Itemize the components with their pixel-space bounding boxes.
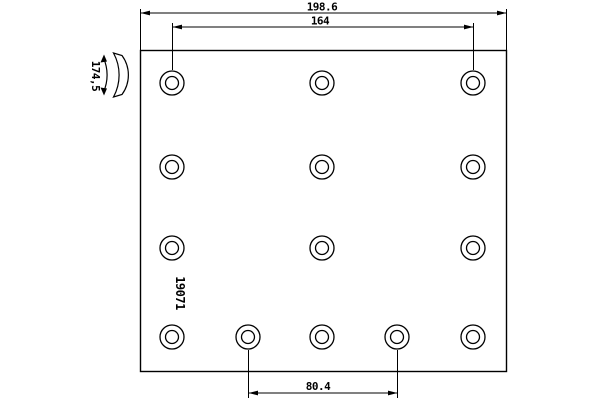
part-number-label: 19071 bbox=[173, 276, 187, 310]
rivet-hole bbox=[160, 236, 184, 260]
arrowhead-left-icon bbox=[249, 391, 259, 396]
dimension-label-upper-hole-span: 164 bbox=[311, 15, 330, 28]
rivet-hole bbox=[166, 77, 179, 90]
rivet-hole bbox=[461, 325, 485, 349]
technical-drawing: 198.6 164 80.4 174,5 bbox=[0, 0, 600, 400]
arrowhead-right-icon bbox=[497, 11, 507, 16]
rivet-hole bbox=[316, 331, 329, 344]
rivet-hole bbox=[160, 155, 184, 179]
rivet-hole bbox=[391, 331, 404, 344]
rivet-hole bbox=[461, 155, 485, 179]
rivet-hole bbox=[316, 77, 329, 90]
rivet-hole bbox=[310, 236, 334, 260]
rivet-hole bbox=[310, 155, 334, 179]
arrowhead-right-icon bbox=[464, 25, 474, 30]
dimension-label-overall-width: 198.6 bbox=[307, 1, 338, 14]
dimension-label-lower-hole-span: 80.4 bbox=[306, 380, 331, 393]
rivet-hole bbox=[160, 71, 184, 95]
rivet-hole bbox=[242, 331, 255, 344]
rivet-hole bbox=[467, 77, 480, 90]
rivet-hole bbox=[316, 242, 329, 255]
dimension-upper-hole-span: 164 bbox=[173, 15, 474, 71]
rivet-hole bbox=[166, 242, 179, 255]
rivet-hole bbox=[166, 331, 179, 344]
curvature-crescent bbox=[114, 53, 129, 97]
rivet-holes bbox=[160, 71, 485, 349]
rivet-hole bbox=[160, 325, 184, 349]
rivet-hole bbox=[310, 325, 334, 349]
arrowhead-left-icon bbox=[173, 25, 183, 30]
brake-lining-outline bbox=[141, 51, 507, 372]
rivet-hole bbox=[310, 71, 334, 95]
rivet-hole bbox=[467, 161, 480, 174]
rivet-hole bbox=[385, 325, 409, 349]
rivet-hole bbox=[166, 161, 179, 174]
curvature-arrow-arc bbox=[104, 58, 108, 92]
rivet-hole bbox=[461, 71, 485, 95]
rivet-hole bbox=[467, 242, 480, 255]
arrowhead-left-icon bbox=[141, 11, 151, 16]
rivet-hole bbox=[467, 331, 480, 344]
drawing-canvas: 198.6 164 80.4 174,5 bbox=[0, 0, 600, 400]
dimension-lower-hole-span: 80.4 bbox=[249, 350, 398, 398]
rivet-hole bbox=[461, 236, 485, 260]
rivet-hole bbox=[316, 161, 329, 174]
rivet-hole bbox=[236, 325, 260, 349]
arrowhead-right-icon bbox=[388, 391, 398, 396]
curvature-symbol: 174,5 bbox=[89, 53, 128, 97]
radius-label: 174,5 bbox=[89, 61, 102, 92]
